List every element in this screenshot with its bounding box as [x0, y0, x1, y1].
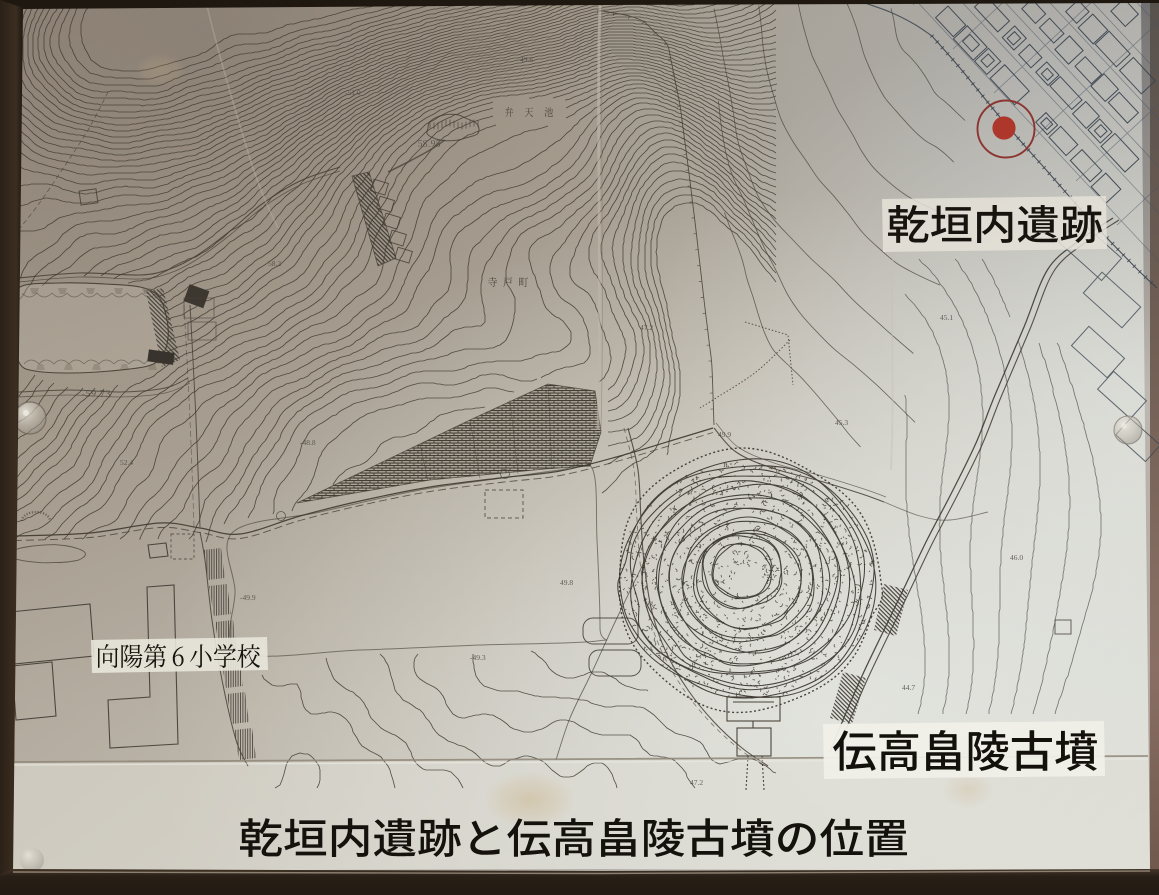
svg-text:47.2: 47.2 — [690, 778, 703, 787]
svg-text:49.9: 49.9 — [718, 430, 731, 439]
svg-text:45.1: 45.1 — [940, 313, 953, 322]
svg-text:52.4: 52.4 — [120, 458, 133, 467]
svg-text:49.6: 49.6 — [520, 55, 533, 64]
svg-text:49.8: 49.8 — [560, 578, 573, 587]
svg-text:47.2: 47.2 — [640, 323, 653, 332]
svg-text:-48.8: -48.8 — [300, 438, 316, 447]
svg-text:45.3: 45.3 — [835, 418, 848, 427]
svg-text:58.2: 58.2 — [268, 259, 281, 268]
svg-text:46.0: 46.0 — [1010, 553, 1023, 562]
svg-text:-49.3: -49.3 — [470, 653, 486, 662]
svg-text:44.7: 44.7 — [902, 683, 915, 692]
svg-text:-49.9: -49.9 — [240, 593, 256, 602]
svg-text:-51.0: -51.0 — [345, 88, 361, 97]
